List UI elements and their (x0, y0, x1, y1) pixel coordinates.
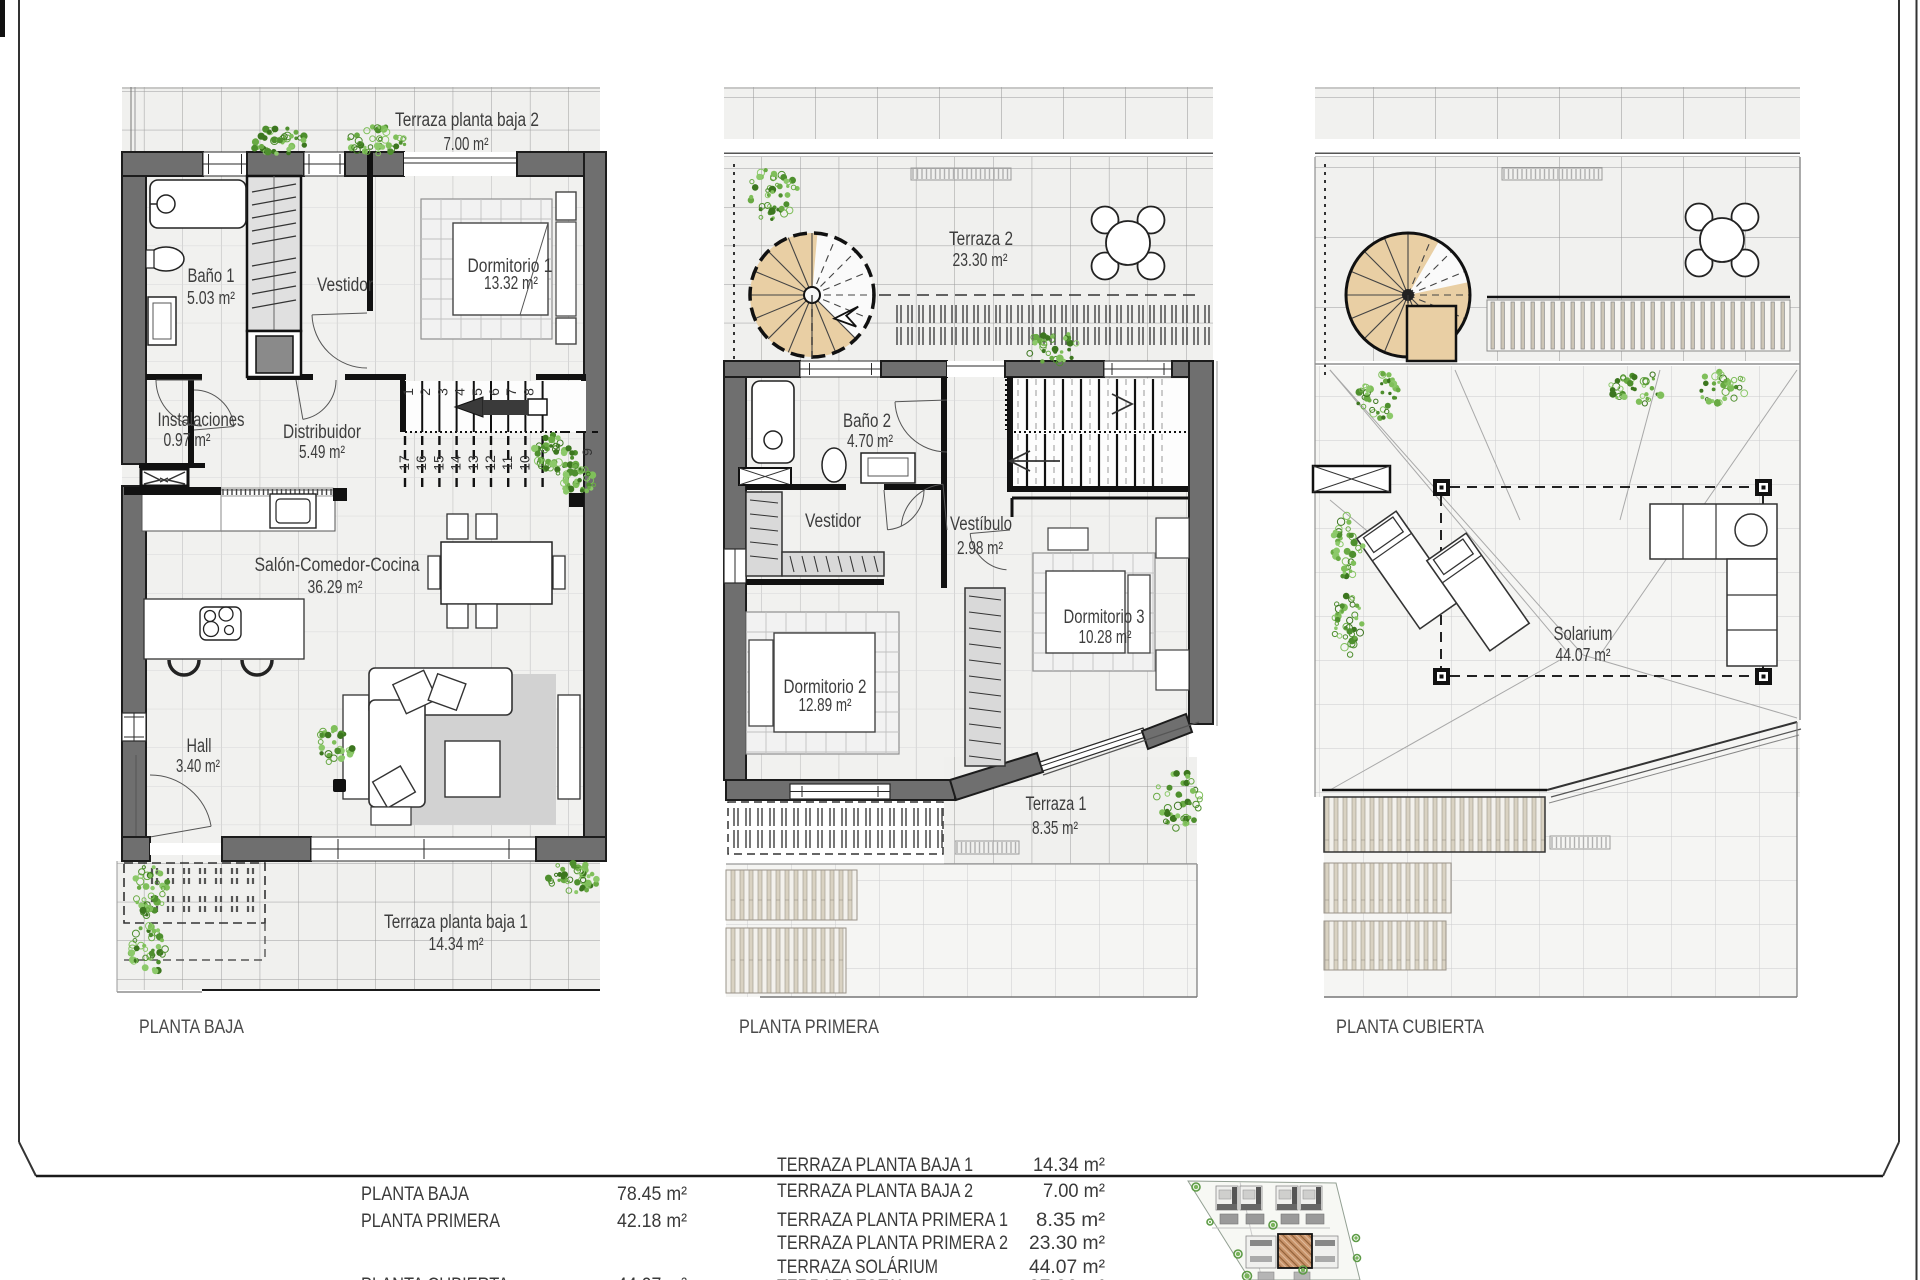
svg-text:4: 4 (452, 388, 468, 396)
svg-text:17: 17 (396, 455, 412, 471)
svg-text:Baño 1: Baño 1 (188, 266, 235, 287)
svg-text:Dormitorio 3: Dormitorio 3 (1064, 607, 1145, 628)
svg-text:PLANTA PRIMERA: PLANTA PRIMERA (361, 1211, 500, 1232)
svg-text:23.30 m²: 23.30 m² (1029, 1233, 1105, 1254)
svg-text:13.32 m²: 13.32 m² (484, 273, 538, 293)
svg-text:2: 2 (417, 388, 433, 396)
svg-text:15: 15 (430, 455, 446, 471)
svg-text:44.07 m²: 44.07 m² (1029, 1257, 1105, 1278)
svg-text:PLANTA BAJA: PLANTA BAJA (361, 1184, 469, 1205)
svg-text:14.34 m²: 14.34 m² (1033, 1155, 1105, 1176)
svg-text:Distribuidor: Distribuidor (283, 422, 362, 443)
svg-text:12: 12 (482, 455, 498, 471)
svg-text:5.49 m²: 5.49 m² (299, 442, 345, 462)
svg-text:6: 6 (486, 388, 502, 396)
svg-text:14: 14 (448, 455, 464, 471)
svg-text:36.29 m²: 36.29 m² (308, 577, 363, 597)
svg-text:Terraza planta baja 1: Terraza planta baja 1 (384, 912, 528, 933)
svg-text:3.40 m²: 3.40 m² (176, 756, 220, 776)
svg-text:5: 5 (469, 388, 485, 396)
svg-text:TERRAZA PLANTA PRIMERA 2: TERRAZA PLANTA PRIMERA 2 (777, 1233, 1008, 1254)
svg-text:2.98 m²: 2.98 m² (957, 538, 1003, 558)
svg-text:9: 9 (579, 448, 595, 456)
svg-text:78.45 m²: 78.45 m² (617, 1184, 687, 1205)
svg-text:10: 10 (516, 455, 532, 471)
svg-text:Solarium: Solarium (1554, 624, 1613, 645)
svg-text:11: 11 (499, 456, 515, 471)
svg-text:4.70 m²: 4.70 m² (847, 431, 893, 451)
svg-text:Terraza planta baja 2: Terraza planta baja 2 (395, 110, 539, 131)
svg-text:PLANTA CUBIERTA: PLANTA CUBIERTA (361, 1275, 509, 1280)
svg-text:44.07 m²: 44.07 m² (617, 1275, 687, 1280)
svg-text:TERRAZA SOLÁRIUM: TERRAZA SOLÁRIUM (777, 1257, 938, 1278)
svg-text:13: 13 (465, 455, 481, 471)
svg-text:5.03 m²: 5.03 m² (187, 288, 235, 308)
svg-text:Vestidor: Vestidor (805, 511, 862, 532)
svg-text:10.28 m²: 10.28 m² (1079, 627, 1132, 647)
svg-text:TERRAZA PLANTA PRIMERA 1: TERRAZA PLANTA PRIMERA 1 (777, 1210, 1008, 1231)
svg-text:TERRAZA PLANTA BAJA 1: TERRAZA PLANTA BAJA 1 (777, 1155, 973, 1176)
svg-text:Instalaciones: Instalaciones (158, 410, 245, 431)
svg-text:Vestíbulo: Vestíbulo (950, 514, 1012, 535)
svg-text:7.00 m²: 7.00 m² (444, 134, 489, 154)
svg-text:0.97 m²: 0.97 m² (164, 430, 211, 450)
svg-text:23.30 m²: 23.30 m² (953, 250, 1008, 270)
svg-text:PLANTA PRIMERA: PLANTA PRIMERA (739, 1016, 879, 1038)
svg-text:Salón-Comedor-Cocina: Salón-Comedor-Cocina (255, 555, 420, 576)
svg-text:Hall: Hall (187, 736, 212, 757)
svg-text:TERRAZA PLANTA BAJA 2: TERRAZA PLANTA BAJA 2 (777, 1181, 973, 1202)
svg-text:42.18 m²: 42.18 m² (617, 1211, 687, 1232)
svg-text:12.89 m²: 12.89 m² (799, 695, 852, 715)
svg-text:3: 3 (434, 388, 450, 396)
svg-text:8.35 m²: 8.35 m² (1036, 1210, 1105, 1231)
svg-text:8.35 m²: 8.35 m² (1032, 818, 1078, 838)
svg-text:8: 8 (520, 388, 536, 396)
svg-text:Baño 2: Baño 2 (843, 411, 891, 432)
svg-text:Terraza 1: Terraza 1 (1026, 794, 1087, 815)
svg-text:7.00 m²: 7.00 m² (1043, 1181, 1105, 1202)
svg-text:44.07 m²: 44.07 m² (1556, 645, 1611, 665)
svg-text:Vestidor: Vestidor (317, 275, 374, 296)
svg-text:1: 1 (400, 388, 416, 396)
svg-text:Terraza 2: Terraza 2 (949, 229, 1013, 250)
svg-text:PLANTA CUBIERTA: PLANTA CUBIERTA (1336, 1016, 1484, 1038)
svg-text:14.34 m²: 14.34 m² (429, 934, 484, 954)
svg-text:7: 7 (503, 388, 519, 396)
svg-text:PLANTA BAJA: PLANTA BAJA (139, 1016, 244, 1038)
svg-text:16: 16 (413, 455, 429, 471)
